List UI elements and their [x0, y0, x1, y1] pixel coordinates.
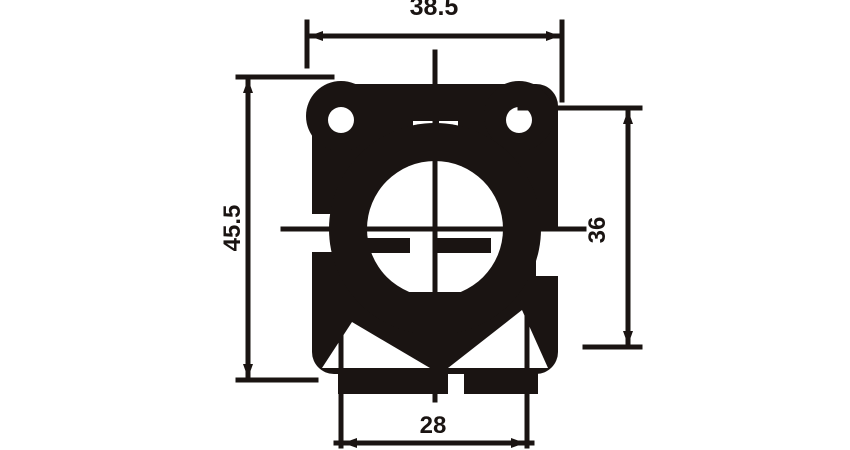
dimension-drawing: 38.5 45.5 36 28: [0, 0, 850, 450]
left-arrowhead-top: [243, 79, 253, 93]
right-arrowhead-top: [623, 110, 633, 124]
left-dimension-value: 45.5: [219, 205, 246, 252]
technical-drawing-canvas: 38.5 45.5 36 28: [0, 0, 850, 450]
bore-slot-right: [437, 238, 491, 253]
top-dimension-value: 38.5: [410, 0, 459, 21]
left-arrowhead-bottom: [243, 364, 253, 378]
bottom-dimension-value: 28: [420, 412, 447, 439]
top-arrowhead-left: [309, 31, 323, 41]
top-arrowhead-right: [546, 31, 560, 41]
right-dimension-value: 36: [584, 217, 611, 244]
side-notch-left: [312, 214, 332, 252]
mounting-hole-left: [328, 107, 354, 133]
component-silhouette: [306, 81, 558, 394]
mounting-hole-right: [506, 107, 532, 133]
bottom-arrowhead-right: [511, 438, 525, 448]
bottom-arrowhead-left: [343, 438, 357, 448]
bore-slot-left: [356, 238, 410, 253]
right-arrowhead-bottom: [623, 331, 633, 345]
bottom-tab-left: [338, 370, 448, 394]
